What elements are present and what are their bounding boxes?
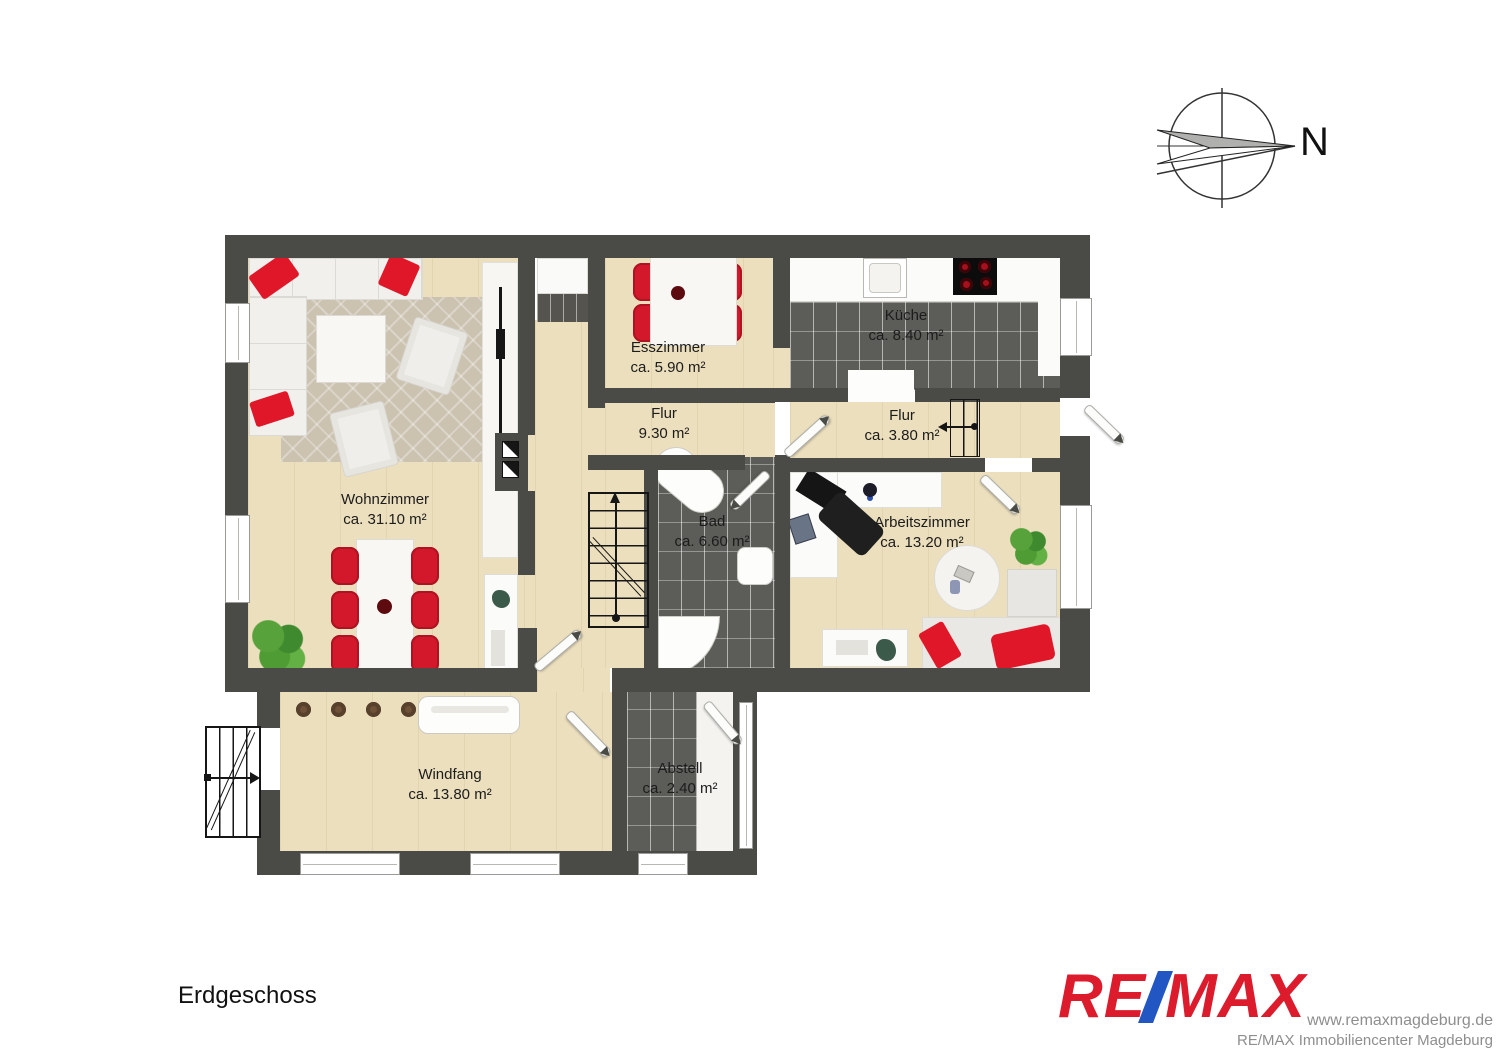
kitchen-sink-basin — [869, 263, 901, 293]
floorplan-canvas: Wohnzimmer ca. 31.10 m² Esszimmer ca. 5.… — [0, 0, 1500, 1060]
room-name: Flur — [639, 404, 690, 424]
wall-arbeitszimmer-top-west — [790, 458, 985, 472]
stairs-start-dot — [612, 614, 620, 622]
room-label-flur: Flur 9.30 m² — [639, 404, 690, 444]
bath-sink — [737, 547, 773, 585]
dining-chair — [411, 591, 439, 629]
room-label-arbeitszimmer: Arbeitszimmer ca. 13.20 m² — [874, 513, 970, 553]
ext-stairs-arrow-head — [250, 772, 260, 784]
room-area: ca. 8.40 m² — [868, 326, 943, 346]
table-bowl — [377, 599, 392, 614]
wall-esszimmer-kueche-stub — [773, 258, 790, 348]
stove-burner — [960, 278, 973, 291]
compass-north-label: N — [1300, 120, 1329, 165]
room-name: Wohnzimmer — [341, 490, 429, 510]
room-area: ca. 5.90 m² — [630, 358, 705, 378]
room-area: ca. 2.40 m² — [642, 779, 717, 799]
window — [470, 853, 560, 875]
wall-esszimmer-left — [588, 258, 605, 408]
kitchen-door-mat — [848, 370, 914, 402]
stairs-up-arrow — [610, 492, 620, 503]
room-area: ca. 6.60 m² — [674, 532, 749, 552]
office-name: RE/MAX Immobiliencenter Magdeburg — [1237, 1032, 1493, 1049]
room-name: Bad — [674, 512, 749, 532]
sideboard-tray — [836, 640, 868, 655]
door-opening-flur2-exterior — [1060, 398, 1090, 436]
dining-table — [650, 256, 737, 346]
chimney-symbol — [502, 461, 519, 478]
remax-logo: REMAX — [1058, 961, 1306, 1032]
compass-icon — [1155, 86, 1300, 212]
wardrobe-top — [537, 258, 588, 294]
stove-burner — [959, 261, 971, 273]
logo-re: RE — [1058, 962, 1146, 1031]
dining-chair — [331, 547, 359, 585]
room-label-flur2: Flur ca. 3.80 m² — [864, 406, 939, 446]
dining-chair — [411, 547, 439, 585]
room-name: Küche — [868, 306, 943, 326]
room-label-esszimmer: Esszimmer ca. 5.90 m² — [630, 338, 705, 378]
stove-burner — [978, 260, 991, 273]
potted-plant — [1010, 528, 1048, 566]
window — [300, 853, 400, 875]
room-name: Flur — [864, 406, 939, 426]
room-label-kueche: Küche ca. 8.40 m² — [868, 306, 943, 346]
window — [638, 853, 688, 875]
wardrobe-rail — [537, 294, 588, 322]
room-label-abstell: Abstell ca. 2.40 m² — [642, 759, 717, 799]
rug-toy — [950, 580, 960, 594]
floor-title: Erdgeschoss — [178, 982, 317, 1010]
wall-bad-top — [588, 455, 745, 470]
window — [225, 515, 250, 603]
potted-plant — [252, 620, 306, 674]
wall-esszimmer-bottom — [588, 388, 775, 403]
window — [1060, 505, 1092, 609]
ext-stairs-dot — [204, 774, 211, 781]
wall-bottom-west — [225, 668, 537, 692]
room-label-wohnzimmer: Wohnzimmer ca. 31.10 m² — [341, 490, 429, 530]
interior-stairs — [588, 492, 649, 628]
wall-bad-right — [775, 455, 790, 692]
tv-soundbar — [496, 329, 505, 359]
stairs-center-line — [615, 497, 617, 619]
room-area: ca. 31.10 m² — [341, 510, 429, 530]
wall-wohnzimmer-flur-upper — [518, 258, 535, 435]
room-area: ca. 3.80 m² — [864, 426, 939, 446]
sideboard-tray — [491, 630, 505, 666]
kitchen-cabinet-right — [1038, 300, 1060, 376]
website-link[interactable]: www.remaxmagdeburg.de — [1307, 1012, 1493, 1030]
chimney-symbol — [502, 441, 519, 458]
bench-slat — [431, 706, 509, 713]
room-area: 9.30 m² — [639, 424, 690, 444]
desk-lamp — [863, 483, 877, 497]
entry-bench — [418, 696, 520, 734]
steps-dot — [971, 423, 978, 430]
window — [739, 702, 753, 849]
wall-kueche-flur2-west — [775, 388, 848, 402]
room-area: ca. 13.20 m² — [874, 533, 970, 553]
room-area: ca. 13.80 m² — [408, 785, 491, 805]
stove-burner — [980, 277, 992, 289]
window — [1060, 298, 1092, 356]
room-name: Abstell — [642, 759, 717, 779]
wall-arbeitszimmer-top-east — [1032, 458, 1060, 472]
coat-hook — [401, 702, 416, 717]
room-name: Windfang — [408, 765, 491, 785]
room-name: Esszimmer — [630, 338, 705, 358]
room-name: Arbeitszimmer — [874, 513, 970, 533]
table-bowl — [671, 286, 685, 300]
coat-hook — [366, 702, 381, 717]
dining-chair — [331, 591, 359, 629]
decor-object — [492, 590, 510, 608]
wall-windfang-abstell — [612, 692, 627, 851]
coat-hook — [331, 702, 346, 717]
door-arrow-icon — [1113, 433, 1126, 446]
room-label-bad: Bad ca. 6.60 m² — [674, 512, 749, 552]
wall-wohnzimmer-flur-lower — [518, 491, 535, 575]
kitchen-counter — [790, 256, 1060, 302]
side-table — [1007, 569, 1057, 617]
logo-max: MAX — [1165, 962, 1306, 1031]
coffee-table — [316, 315, 386, 383]
wall-top — [225, 235, 1090, 258]
wall-bottom-east — [612, 668, 1090, 692]
wall-wohnzimmer-door-stub — [518, 628, 537, 668]
decor-object — [876, 639, 896, 661]
floor-flur-horizontal — [605, 402, 775, 458]
wall-kueche-flur2-east — [915, 388, 1060, 402]
coat-hook — [296, 702, 311, 717]
room-label-windfang: Windfang ca. 13.80 m² — [408, 765, 491, 805]
window — [225, 303, 250, 363]
